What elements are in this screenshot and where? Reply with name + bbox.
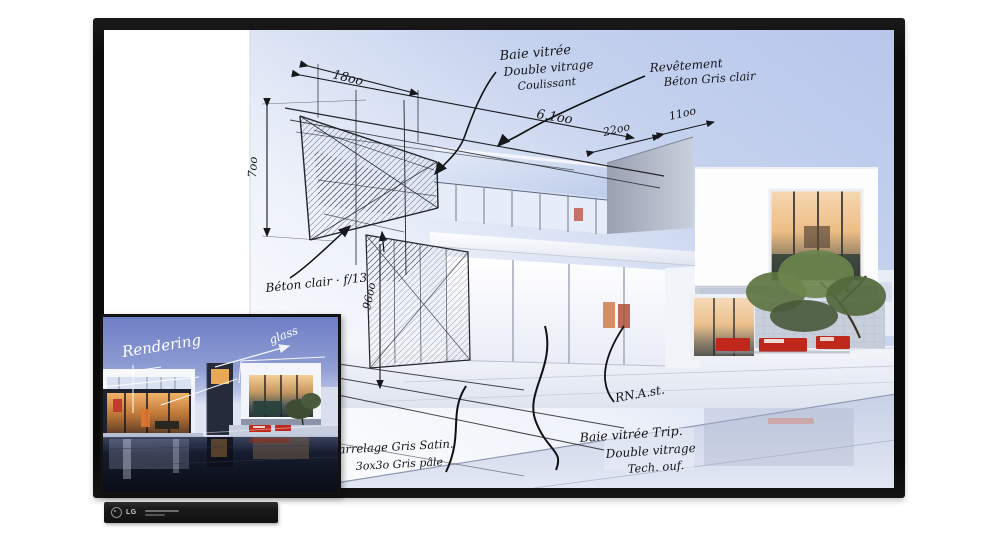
inset-dark-tower xyxy=(207,363,233,435)
teal-furniture xyxy=(253,401,281,415)
sofa-shadow xyxy=(716,351,850,354)
sofa-cushion xyxy=(820,337,834,341)
distant-wall xyxy=(321,387,338,427)
orange-figure xyxy=(141,409,150,427)
lg-logo-icon xyxy=(111,507,122,518)
dim-label-7oo: 7oo xyxy=(245,156,260,178)
red-artwork xyxy=(113,399,122,412)
interior-art-accent xyxy=(574,208,583,221)
sofa-cushion xyxy=(764,339,784,343)
inset-rendering-scene: Rendering glass xyxy=(103,317,338,492)
inset-water xyxy=(103,436,338,492)
inset-display: Rendering glass xyxy=(100,314,341,495)
lg-logo-text: LG xyxy=(126,509,137,516)
tower-warm-window xyxy=(211,369,229,384)
soundbar: LG xyxy=(104,502,278,523)
interior-art-1 xyxy=(603,302,615,328)
product-photo: 18oo 7oo 6.1oo 22oo 11oo 96oo Baie vitré… xyxy=(0,0,1000,542)
dark-sofa xyxy=(155,421,179,429)
interior-art-2 xyxy=(618,304,630,328)
interior-artframe xyxy=(804,226,830,248)
ground-floor-glazing xyxy=(445,256,665,366)
fine-print-lines xyxy=(145,510,179,516)
red-sofa-reflection xyxy=(768,418,814,424)
pool-reflection xyxy=(704,408,854,466)
